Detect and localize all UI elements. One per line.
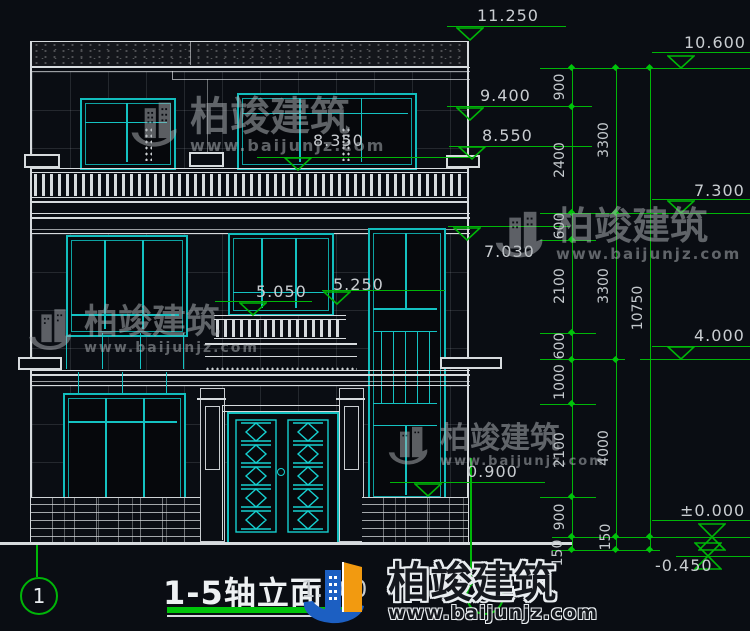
- window-transom: [373, 403, 437, 404]
- floor-band-line: [30, 217, 470, 219]
- floor-band-line: [30, 374, 470, 376]
- tick-mark: [646, 546, 653, 553]
- balusters: [34, 174, 466, 196]
- brand-logo-icon: [298, 558, 376, 626]
- tick-mark: [646, 533, 653, 540]
- pilaster-cap: [197, 398, 226, 400]
- tick-mark: [568, 329, 575, 336]
- tick-mark: [646, 64, 653, 71]
- elevation-triangle: [456, 107, 484, 121]
- window-stub: [122, 372, 123, 393]
- stair-window: [368, 228, 446, 502]
- axis-bubble-1: 1: [20, 577, 58, 615]
- window-mullion: [299, 98, 301, 162]
- spandrel-line: [140, 333, 141, 369]
- tick-mark: [568, 236, 575, 243]
- building-left-edge: [30, 41, 32, 543]
- window-mullion: [417, 332, 418, 403]
- door-leaf-lattice: [285, 418, 331, 534]
- dim-chain-line: [572, 68, 573, 550]
- rail-bottom: [32, 197, 468, 198]
- window-transom: [68, 421, 177, 423]
- window-mullion: [361, 98, 362, 162]
- door-leaf-lattice: [233, 418, 279, 534]
- parapet-step-line: [172, 71, 173, 79]
- elevation-label: 4.000: [694, 326, 745, 345]
- parapet-coping: [31, 41, 469, 67]
- tick-mark: [568, 400, 575, 407]
- window-mullion: [105, 398, 107, 511]
- window-mullion: [143, 398, 145, 511]
- dim-label: 1000: [551, 347, 569, 417]
- door-jamb: [339, 405, 340, 540]
- window-mullion: [429, 332, 430, 403]
- tick-mark: [568, 546, 575, 553]
- coping-joint-line: [190, 41, 191, 65]
- elevation-label: 10.600: [684, 33, 746, 52]
- balcony-railing-3f: [32, 168, 468, 204]
- level-line: [652, 520, 750, 521]
- window-mullion: [405, 233, 407, 310]
- tick-mark: [568, 209, 575, 216]
- elevation-label: 11.250: [477, 6, 539, 25]
- elevation-label: 8.550: [482, 126, 533, 145]
- balcony-slab: [205, 343, 357, 357]
- pilaster-panel: [344, 406, 359, 470]
- pilaster-cap: [336, 398, 365, 400]
- dim-label: 3300: [595, 251, 613, 321]
- floor-band-line: [30, 385, 470, 386]
- elevation-triangle: [239, 302, 267, 316]
- elevation-triangle: [667, 200, 695, 214]
- entrance-door: [227, 412, 339, 544]
- axis-number: 1: [33, 584, 46, 608]
- tick-mark: [568, 533, 575, 540]
- elevation-drawing-canvas: 900 2400 600 2100 600 1000 2100 900 150 …: [0, 0, 750, 631]
- dim-label: 2100: [551, 415, 569, 485]
- elevation-triangle: [284, 157, 312, 171]
- window-mullion: [393, 332, 394, 403]
- ledge: [18, 357, 62, 370]
- window-inner-frame: [373, 233, 441, 497]
- window-inner-frame: [71, 240, 183, 332]
- tick-mark: [612, 209, 619, 216]
- pier-cap: [24, 154, 60, 168]
- window-mullion: [126, 103, 128, 162]
- brand-logo: 柏竣建筑 www.baijunjz.com: [298, 558, 598, 626]
- elevation-label: 7.300: [694, 181, 745, 200]
- level-line: [652, 52, 750, 53]
- floor-band-line: [30, 370, 470, 371]
- window-stub: [166, 372, 167, 393]
- balusters: [216, 320, 344, 337]
- tick-mark: [612, 64, 619, 71]
- door-jamb: [222, 405, 223, 540]
- spandrel-line: [66, 333, 67, 369]
- dim-label: 4000: [595, 413, 613, 483]
- dim-chain-line: [650, 68, 651, 550]
- tick-mark: [568, 356, 575, 363]
- brand-logo-text: 柏竣建筑: [388, 562, 598, 604]
- rail-top: [32, 172, 468, 173]
- pilaster-panel: [205, 406, 220, 470]
- spandrel-line: [102, 333, 103, 369]
- door-head-line: [222, 405, 340, 406]
- window-mullion: [381, 332, 382, 403]
- watermark-url: www.baijunjz.com: [556, 247, 741, 263]
- dim-chain-line: [616, 68, 617, 550]
- window-2f-left: [66, 235, 188, 337]
- elevation-triangle: [667, 55, 695, 69]
- pier-line: [207, 79, 208, 153]
- dim-label: 3300: [595, 105, 613, 175]
- level-line: [640, 359, 750, 360]
- elevation-label: 8.350: [313, 131, 364, 150]
- door-handle: [277, 468, 285, 476]
- floor-band-line: [30, 213, 470, 214]
- elevation-triangle: [414, 483, 442, 497]
- elevation-label: 7.030: [484, 242, 535, 261]
- window-transom: [71, 314, 179, 316]
- elevation-label: 5.250: [333, 275, 384, 294]
- window-transom: [242, 113, 408, 114]
- dim-label: 2400: [551, 125, 569, 195]
- dim-label: 900: [551, 52, 569, 122]
- tick-mark: [568, 64, 575, 71]
- dim-label-total: 10750: [629, 273, 647, 343]
- elevation-label: 9.400: [480, 86, 531, 105]
- ground-line: [0, 542, 572, 545]
- rail-top: [32, 168, 468, 169]
- elevation-triangle: [456, 27, 484, 41]
- pilaster-right: [339, 388, 364, 542]
- pier-cap: [189, 152, 224, 167]
- tick-mark: [612, 356, 619, 363]
- elevation-label: 0.900: [467, 462, 518, 481]
- parapet-line: [30, 67, 470, 68]
- rail-top: [214, 315, 346, 316]
- ledge: [440, 357, 502, 369]
- stone-plinth-left: [31, 497, 200, 544]
- balcony-railing-2f: [214, 315, 346, 343]
- elevation-label: -0.450: [655, 556, 713, 575]
- brand-logo-url: www.baijunjz.com: [388, 604, 598, 623]
- tick-mark: [568, 493, 575, 500]
- parapet-step-line: [172, 79, 470, 80]
- elevation-triangle: [453, 227, 481, 241]
- axis-line-1: [36, 545, 38, 577]
- rail-bottom: [214, 338, 346, 339]
- window-3f-left: [80, 98, 176, 170]
- window-vent-dots: [144, 127, 152, 161]
- window-transom: [85, 122, 167, 123]
- elevation-label: ±0.000: [680, 501, 745, 520]
- tick-mark: [568, 103, 575, 110]
- window-transom: [373, 308, 437, 310]
- elevation-label: 5.050: [256, 282, 307, 301]
- spandrel-line: [183, 333, 184, 369]
- window-inner-frame: [85, 103, 171, 165]
- window-stub: [78, 372, 79, 393]
- stone-plinth-right: [362, 497, 468, 544]
- rail-bottom: [32, 201, 468, 203]
- elevation-triangle: [667, 346, 695, 360]
- floor-band-line: [30, 381, 470, 382]
- dim-label: 150: [597, 502, 615, 572]
- window-mullion: [405, 426, 407, 495]
- parapet-line: [30, 71, 470, 72]
- elevation-triangle: [458, 146, 486, 160]
- window-mullion: [405, 332, 406, 403]
